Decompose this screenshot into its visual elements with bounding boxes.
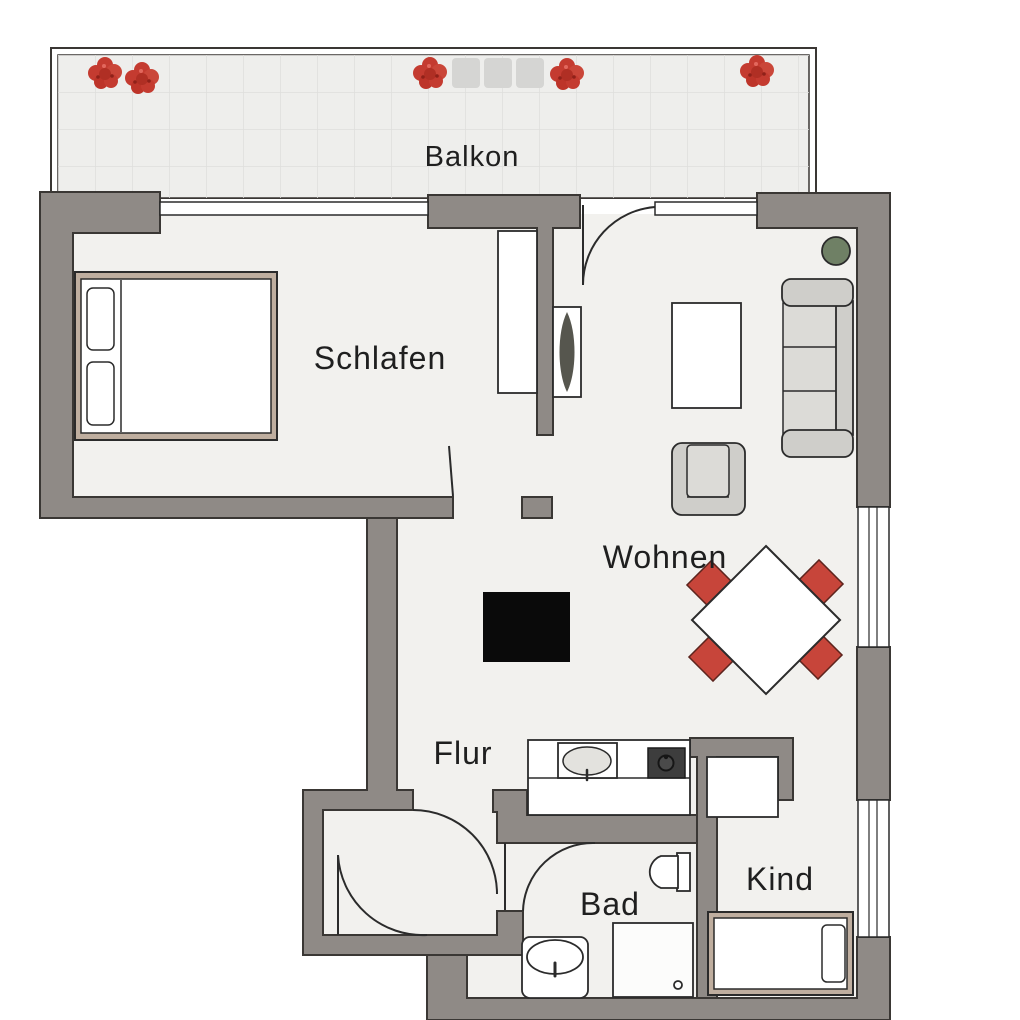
cooktop-icon xyxy=(648,748,685,778)
sofa xyxy=(782,279,853,457)
window-schlafen-balcony xyxy=(160,202,428,215)
floor-plan-svg: Balkon Schlafen Wohnen Flur Bad Kind xyxy=(0,0,1020,1020)
room-label-balkon: Balkon xyxy=(425,141,520,173)
floor-vestibule xyxy=(323,810,497,935)
window-wohnen-balcony xyxy=(655,202,757,215)
shower-icon xyxy=(613,923,693,997)
room-label-flur: Flur xyxy=(433,735,492,771)
single-bed xyxy=(708,912,853,995)
window-kind-right xyxy=(858,800,889,937)
floor-bad-niche xyxy=(467,955,523,998)
toilet-icon xyxy=(650,853,690,891)
sofa-armrest xyxy=(782,279,853,306)
sofa-backrest xyxy=(836,301,853,435)
room-label-bad: Bad xyxy=(580,886,640,922)
balcony xyxy=(51,48,816,198)
wall-segment-right-mid xyxy=(857,647,890,800)
potted-plant-icon xyxy=(822,237,850,265)
sofa-armrest xyxy=(782,430,853,457)
balcony-pad xyxy=(516,58,544,88)
room-label-kind: Kind xyxy=(746,861,814,897)
pillow xyxy=(87,288,114,350)
wall-segment-door-stub xyxy=(522,497,552,518)
balcony-pad xyxy=(484,58,512,88)
pillow xyxy=(822,925,845,982)
sideboard-with-plant xyxy=(553,307,581,397)
built-in-wardrobe xyxy=(498,231,537,393)
floor-doorway xyxy=(413,790,497,810)
room-label-schlafen: Schlafen xyxy=(314,340,447,376)
room-label-wohnen: Wohnen xyxy=(603,539,728,575)
pillow xyxy=(87,362,114,425)
window-wohnen-right xyxy=(858,507,889,647)
balcony-pad xyxy=(452,58,480,88)
wardrobe xyxy=(707,757,778,817)
armchair xyxy=(672,443,745,515)
coffee-table xyxy=(672,303,741,408)
floor-plan: Balkon Schlafen Wohnen Flur Bad Kind xyxy=(0,0,1020,1020)
double-bed xyxy=(75,272,277,440)
washbasin-icon xyxy=(522,937,588,998)
black-cabinet xyxy=(483,592,570,662)
kitchen-sink-icon xyxy=(558,743,617,780)
kitchenette-counter xyxy=(528,740,690,815)
